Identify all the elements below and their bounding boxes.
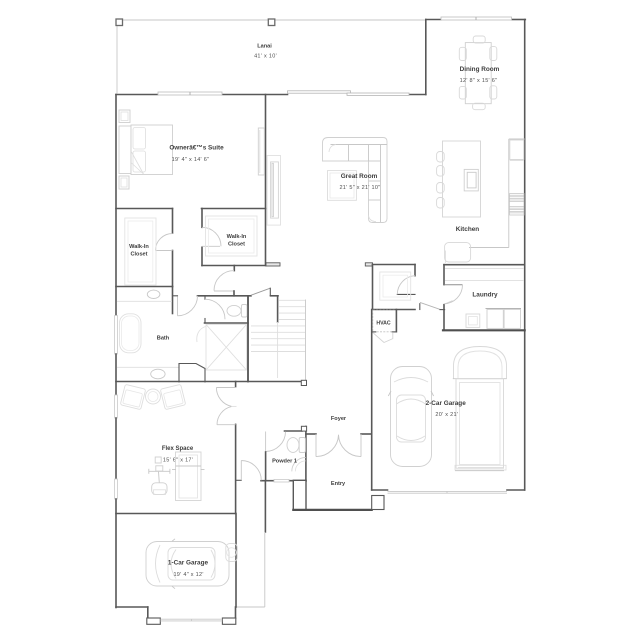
- svg-text:19' 4" x 14' 6": 19' 4" x 14' 6": [172, 157, 210, 163]
- svg-text:41' x 10': 41' x 10': [254, 54, 277, 60]
- svg-text:Flex Space: Flex Space: [162, 446, 194, 452]
- svg-text:15' 6" x 17': 15' 6" x 17': [163, 458, 193, 464]
- svg-text:Walk-In: Walk-In: [129, 244, 149, 250]
- svg-text:20' x 21': 20' x 21': [435, 412, 458, 418]
- svg-text:Lanai: Lanai: [257, 44, 272, 50]
- svg-text:Dining Room: Dining Room: [460, 66, 500, 73]
- svg-text:Powder 1: Powder 1: [272, 458, 297, 464]
- svg-text:Walk-In: Walk-In: [227, 234, 247, 240]
- svg-text:Great Room: Great Room: [341, 173, 378, 180]
- svg-text:Ownerâ€™s Suite: Ownerâ€™s Suite: [169, 145, 224, 152]
- svg-text:Closet: Closet: [228, 242, 245, 248]
- svg-text:Entry: Entry: [331, 481, 346, 487]
- svg-text:Closet: Closet: [130, 252, 147, 258]
- svg-text:21' 5" x 21' 10": 21' 5" x 21' 10": [339, 185, 380, 191]
- svg-text:Foyer: Foyer: [331, 416, 347, 422]
- svg-text:HVAC: HVAC: [376, 320, 391, 326]
- svg-text:Laundry: Laundry: [472, 291, 498, 298]
- svg-text:Bath: Bath: [157, 336, 170, 342]
- svg-text:19' 4" x 12': 19' 4" x 12': [173, 572, 203, 578]
- svg-text:Kitchen: Kitchen: [456, 226, 480, 233]
- svg-text:2-Car Garage: 2-Car Garage: [426, 400, 467, 407]
- svg-text:1-Car Garage: 1-Car Garage: [168, 560, 209, 567]
- svg-text:12' 8" x 15' 6": 12' 8" x 15' 6": [460, 78, 498, 84]
